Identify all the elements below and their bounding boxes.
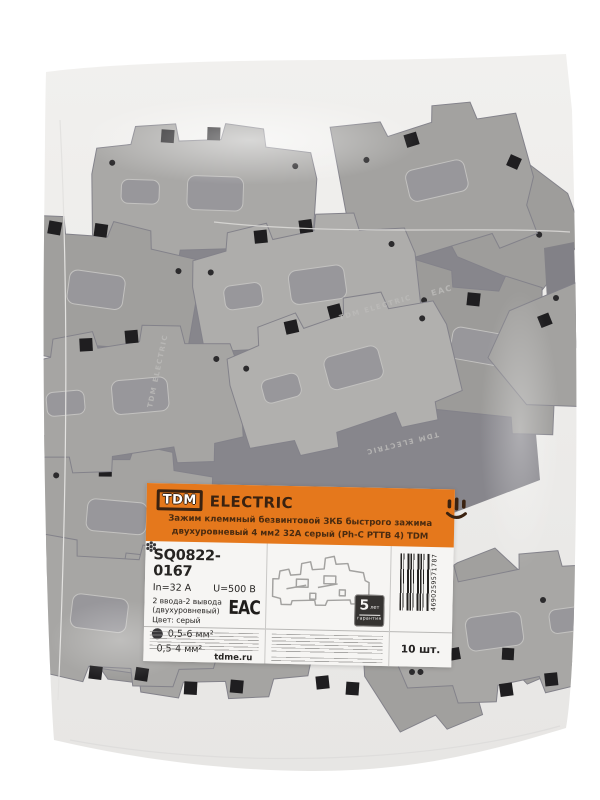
warranty-caption: гарантия bbox=[357, 616, 381, 622]
label-body: SQ0822-0167 In=32 А U=500 В 2 ввода-2 вы… bbox=[143, 541, 453, 667]
rated-voltage: U=500 В bbox=[213, 583, 256, 595]
barcode-bars bbox=[399, 553, 430, 611]
product-photo: TDM ELECTRIC TDM ELECTRIC EAC TDM ELECTR… bbox=[0, 0, 600, 800]
fine-print-text bbox=[271, 657, 382, 665]
barcode: 4690259571787 bbox=[390, 546, 453, 611]
bag-and-blocks: TDM ELECTRIC TDM ELECTRIC EAC TDM ELECTR… bbox=[0, 0, 600, 800]
eac-mark: EAC bbox=[228, 597, 260, 620]
label-header: TDM ELECTRIC Зажим клеммный безвинтовой … bbox=[146, 483, 455, 547]
product-label: TDM ELECTRIC Зажим клеммный безвинтовой … bbox=[143, 483, 455, 667]
barcode-number: 4690259571787 bbox=[430, 554, 438, 611]
warranty-years: 5 bbox=[359, 599, 369, 611]
warranty-unit: лет bbox=[370, 602, 379, 614]
fine-print-text bbox=[271, 634, 382, 655]
tdm-logo: TDM bbox=[156, 489, 203, 511]
rated-current: In=32 А bbox=[153, 582, 192, 594]
fine-print-text bbox=[150, 631, 259, 652]
brand-name: ELECTRIC bbox=[210, 492, 294, 512]
quantity: 10 шт. bbox=[389, 632, 452, 667]
warranty-badge: 5 лет гарантия bbox=[354, 594, 385, 627]
article-number: SQ0822-0167 bbox=[145, 541, 267, 582]
